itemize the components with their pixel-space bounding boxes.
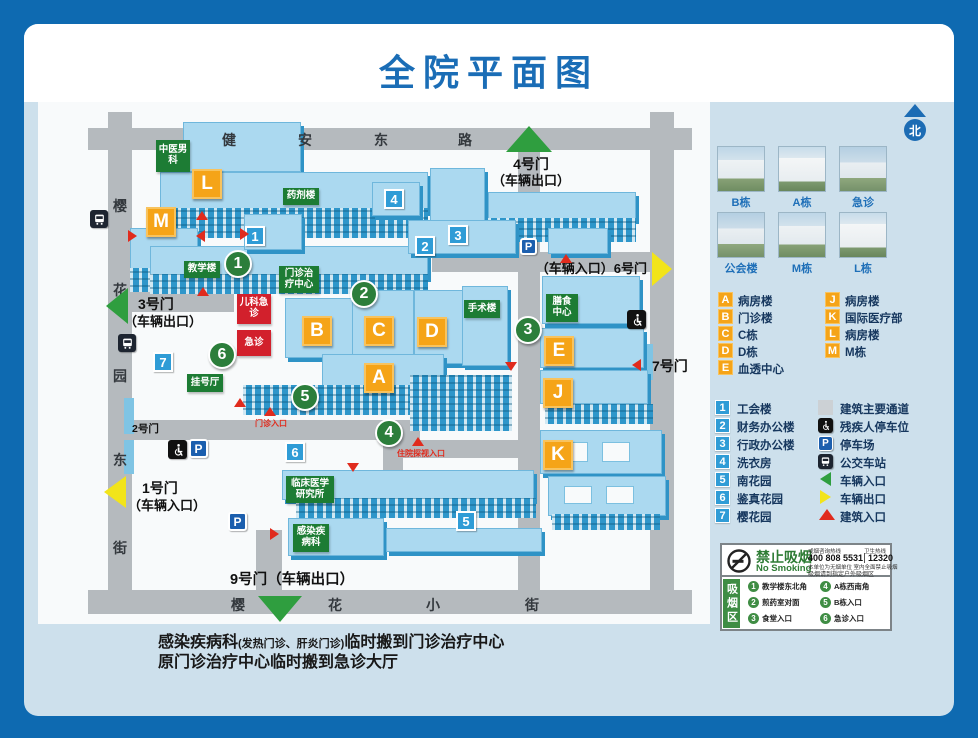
photo-label: A栋 bbox=[778, 194, 826, 210]
building-block bbox=[183, 122, 301, 172]
building-block bbox=[488, 192, 636, 220]
zone-number: 2 bbox=[748, 597, 759, 608]
legend-number-label: 工会楼 bbox=[737, 401, 772, 417]
map-site-7: 7 bbox=[153, 352, 173, 372]
smoking-spot-3: 3 bbox=[514, 316, 542, 344]
path-icon bbox=[818, 400, 833, 415]
street-top-char: 东 bbox=[374, 130, 388, 150]
zone-number: 5 bbox=[820, 597, 831, 608]
street-left-char: 樱 bbox=[113, 196, 127, 216]
map-letter-E: E bbox=[544, 336, 574, 366]
map-letter-M: M bbox=[146, 207, 176, 237]
building-entrance-arrow bbox=[347, 463, 359, 472]
building-entrance-arrow bbox=[270, 528, 279, 540]
map-letter-L: L bbox=[192, 169, 222, 199]
photo-l-building bbox=[839, 212, 887, 258]
legend-letter-key: B bbox=[718, 309, 733, 324]
legend-number-label: 行政办公楼 bbox=[737, 437, 795, 453]
map-site-2: 2 bbox=[415, 236, 435, 256]
smoking-spot-6: 6 bbox=[208, 341, 236, 369]
photo-label: 公会楼 bbox=[717, 260, 765, 276]
smoking-zone-item: 3 食堂入口 bbox=[748, 613, 792, 624]
visit-entrance-arrow bbox=[412, 437, 424, 446]
smoking-zone-item: 6 急诊入口 bbox=[820, 613, 864, 624]
health-hotline-number: 12320 bbox=[864, 553, 893, 563]
building-block-surgery bbox=[462, 286, 508, 366]
parking-icon: P bbox=[189, 439, 208, 458]
street-bottom-char: 花 bbox=[328, 595, 342, 615]
legend-number-label: 鉴真花园 bbox=[737, 491, 783, 507]
gate-6-label: （车辆入口）6号门 bbox=[525, 258, 647, 277]
label-surgery: 手术楼 bbox=[464, 300, 500, 318]
legend-letter-label: 病房楼 bbox=[845, 327, 880, 343]
building-entrance-arrow bbox=[560, 254, 572, 263]
building-entrance-arrow bbox=[196, 211, 208, 220]
building-entrance-arrow bbox=[240, 228, 249, 240]
label-tcm-andrology: 中医男科 bbox=[156, 140, 190, 172]
photo-label: B栋 bbox=[717, 194, 765, 210]
building-entrance-arrow bbox=[197, 287, 209, 296]
legend-number-label: 财务办公楼 bbox=[737, 419, 795, 435]
legend-number-key: 1 bbox=[715, 400, 730, 415]
photo-label: M栋 bbox=[778, 260, 826, 276]
legend-letter-label: 病房楼 bbox=[845, 293, 880, 309]
smoking-zone-item: 4 A栋西南角 bbox=[820, 581, 869, 592]
building-block bbox=[548, 228, 608, 254]
wheelchair-icon bbox=[627, 310, 646, 329]
footer-note-line2: 原门诊治疗中心临时搬到急诊大厅 bbox=[158, 648, 398, 672]
street-top-char: 路 bbox=[458, 130, 472, 150]
road-bottom bbox=[88, 590, 692, 614]
no-smoking-subtitle: No Smoking bbox=[756, 563, 811, 574]
street-top-char: 安 bbox=[298, 130, 312, 150]
label-pharmacy: 药剂楼 bbox=[283, 188, 319, 205]
bus-icon bbox=[818, 454, 833, 469]
map-letter-K: K bbox=[543, 440, 573, 470]
page-title: 全院平面图 bbox=[0, 44, 978, 96]
legend-letter-label: D栋 bbox=[738, 344, 758, 360]
zone-label: 煎药室对面 bbox=[762, 597, 800, 608]
parking-icon: P bbox=[228, 512, 247, 531]
visit-entrance-text: 住院探视入口 bbox=[397, 448, 445, 459]
legend-letter-key: K bbox=[825, 309, 840, 324]
gate-4-arrow bbox=[506, 126, 552, 152]
map-letter-C: C bbox=[364, 316, 394, 346]
legend-letter-label: 病房楼 bbox=[738, 293, 773, 309]
photo-m-building bbox=[778, 212, 826, 258]
street-left-char: 园 bbox=[113, 366, 127, 386]
legend-symbol-label: 车辆入口 bbox=[840, 473, 886, 489]
gate-1-arrow bbox=[104, 476, 126, 508]
zone-number: 3 bbox=[748, 613, 759, 624]
gate-7-arrow bbox=[632, 359, 641, 371]
zone-number: 4 bbox=[820, 581, 831, 592]
gate-4-sub: （车辆出口） bbox=[480, 170, 582, 189]
legend-letter-label: 国际医疗部 bbox=[845, 310, 903, 326]
street-bottom-char: 樱 bbox=[231, 595, 245, 615]
zone-number: 1 bbox=[748, 581, 759, 592]
gate-9-arrow bbox=[258, 596, 302, 622]
smoking-zone-item: 1 教学楼东北角 bbox=[748, 581, 807, 592]
legend-symbol-label: 建筑入口 bbox=[840, 509, 886, 525]
photo-a-building bbox=[778, 146, 826, 192]
zone-label: B栋入口 bbox=[834, 597, 862, 608]
north-indicator: 北 bbox=[904, 119, 926, 141]
legend-number-label: 樱花园 bbox=[737, 509, 772, 525]
map-letter-B: B bbox=[302, 316, 332, 346]
building-entrance-arrow bbox=[505, 362, 517, 371]
parking-icon: P bbox=[818, 436, 833, 451]
courtyard bbox=[564, 486, 592, 504]
plaza-hatch bbox=[410, 375, 512, 431]
smoking-spot-4: 4 bbox=[375, 419, 403, 447]
vehicle-exit-arrow bbox=[820, 490, 831, 504]
map-site-3: 3 bbox=[448, 225, 468, 245]
map-letter-A: A bbox=[364, 363, 394, 393]
photo-b-building bbox=[717, 146, 765, 192]
building-entrance-arrow bbox=[819, 509, 835, 520]
gate-9-label: 9号门（车辆出口） bbox=[230, 568, 400, 589]
building-entrance-arrow bbox=[234, 398, 246, 407]
bus-icon bbox=[118, 334, 136, 352]
legend-letter-key: A bbox=[718, 292, 733, 307]
label-dining-center: 膳食中心 bbox=[546, 294, 578, 322]
building-entrance-arrow bbox=[196, 230, 205, 242]
vehicle-entrance-arrow bbox=[820, 472, 831, 486]
gate-7-name: 7号门 bbox=[652, 356, 688, 376]
hotline-number: 400 808 5531 bbox=[808, 553, 863, 563]
gate-3-sub: （车辆出口） bbox=[124, 311, 202, 330]
label-pediatric-er: 儿科急诊 bbox=[237, 294, 271, 324]
courtyard bbox=[602, 442, 630, 462]
photo-union-building bbox=[717, 212, 765, 258]
smoking-zone-band: 吸烟区 bbox=[723, 579, 740, 628]
photo-emergency bbox=[839, 146, 887, 192]
legend-letter-label: M栋 bbox=[845, 344, 866, 360]
legend-symbol-label: 停车场 bbox=[840, 437, 875, 453]
street-top-char: 健 bbox=[222, 130, 236, 150]
legend-number-key: 4 bbox=[715, 454, 730, 469]
street-left-char: 街 bbox=[113, 538, 127, 558]
legend-number-key: 6 bbox=[715, 490, 730, 505]
label-er: 急诊 bbox=[237, 330, 271, 356]
legend-number-key: 3 bbox=[715, 436, 730, 451]
outpatient-entrance-text: 门诊入口 bbox=[255, 418, 287, 429]
gate-1-sub: （车辆入口） bbox=[128, 495, 206, 514]
legend-number-key: 7 bbox=[715, 508, 730, 523]
building-block bbox=[430, 168, 485, 226]
legend-symbol-label: 残疾人停车位 bbox=[840, 419, 909, 435]
smoking-spot-1: 1 bbox=[224, 250, 252, 278]
map-site-5: 5 bbox=[456, 511, 476, 531]
map-site-4: 4 bbox=[384, 189, 404, 209]
label-outpatient-center: 门诊治疗中心 bbox=[279, 266, 319, 293]
legend-number-key: 2 bbox=[715, 418, 730, 433]
map-site-6: 6 bbox=[285, 442, 305, 462]
wheelchair-icon bbox=[818, 418, 833, 433]
no-smoking-icon bbox=[726, 548, 752, 574]
map-letter-D: D bbox=[417, 317, 447, 347]
photo-label: L栋 bbox=[839, 260, 887, 276]
legend-letter-label: 血透中心 bbox=[738, 361, 784, 377]
building-entrance-arrow bbox=[128, 230, 137, 242]
building-block bbox=[386, 528, 542, 552]
street-left-char: 东 bbox=[113, 450, 127, 470]
wheelchair-icon bbox=[168, 440, 187, 459]
zone-label: 食堂入口 bbox=[762, 613, 792, 624]
legend-letter-key: M bbox=[825, 343, 840, 358]
legend-letter-label: C栋 bbox=[738, 327, 758, 343]
smoking-zone-item: 2 煎药室对面 bbox=[748, 597, 800, 608]
zone-label: A栋西南角 bbox=[834, 581, 869, 592]
legend-letter-key: L bbox=[825, 326, 840, 341]
bus-icon bbox=[90, 210, 108, 228]
legend-letter-label: 门诊楼 bbox=[738, 310, 773, 326]
legend-letter-key: J bbox=[825, 292, 840, 307]
outpatient-entrance-arrow bbox=[264, 407, 276, 416]
legend-letter-key: D bbox=[718, 343, 733, 358]
label-registration: 挂号厅 bbox=[187, 374, 223, 392]
zone-number: 6 bbox=[820, 613, 831, 624]
label-clinical-institute: 临床医学研究所 bbox=[286, 476, 334, 503]
smoking-spot-2: 2 bbox=[350, 280, 378, 308]
street-bottom-char: 街 bbox=[525, 595, 539, 615]
parking-icon: P bbox=[520, 238, 537, 255]
legend-letter-key: E bbox=[718, 360, 733, 375]
legend-symbol-label: 建筑主要通道 bbox=[840, 401, 909, 417]
label-teaching: 教学楼 bbox=[184, 261, 220, 278]
legend-symbol-label: 公交车站 bbox=[840, 455, 886, 471]
zone-label: 教学楼东北角 bbox=[762, 581, 807, 592]
label-infectious-dept: 感染疾病科 bbox=[293, 524, 329, 552]
legend-number-label: 南花园 bbox=[737, 473, 772, 489]
building-roof-hatch bbox=[552, 514, 660, 530]
map-letter-J: J bbox=[543, 378, 573, 408]
street-bottom-char: 小 bbox=[426, 595, 440, 615]
smoking-zone-item: 5 B栋入口 bbox=[820, 597, 862, 608]
smoking-spot-5: 5 bbox=[291, 383, 319, 411]
legend-number-label: 洗衣房 bbox=[737, 455, 772, 471]
gate-2-name: 2号门 bbox=[132, 421, 159, 436]
courtyard bbox=[606, 486, 634, 504]
photo-label: 急诊 bbox=[839, 194, 887, 210]
gate-6-arrow bbox=[652, 252, 672, 286]
no-smoking-note: 吸烟请到指定户外吸烟区 bbox=[808, 569, 874, 578]
legend-number-key: 5 bbox=[715, 472, 730, 487]
legend-letter-key: C bbox=[718, 326, 733, 341]
zone-label: 急诊入口 bbox=[834, 613, 864, 624]
legend-symbol-label: 车辆出口 bbox=[840, 491, 886, 507]
north-arrow-icon bbox=[904, 104, 926, 117]
